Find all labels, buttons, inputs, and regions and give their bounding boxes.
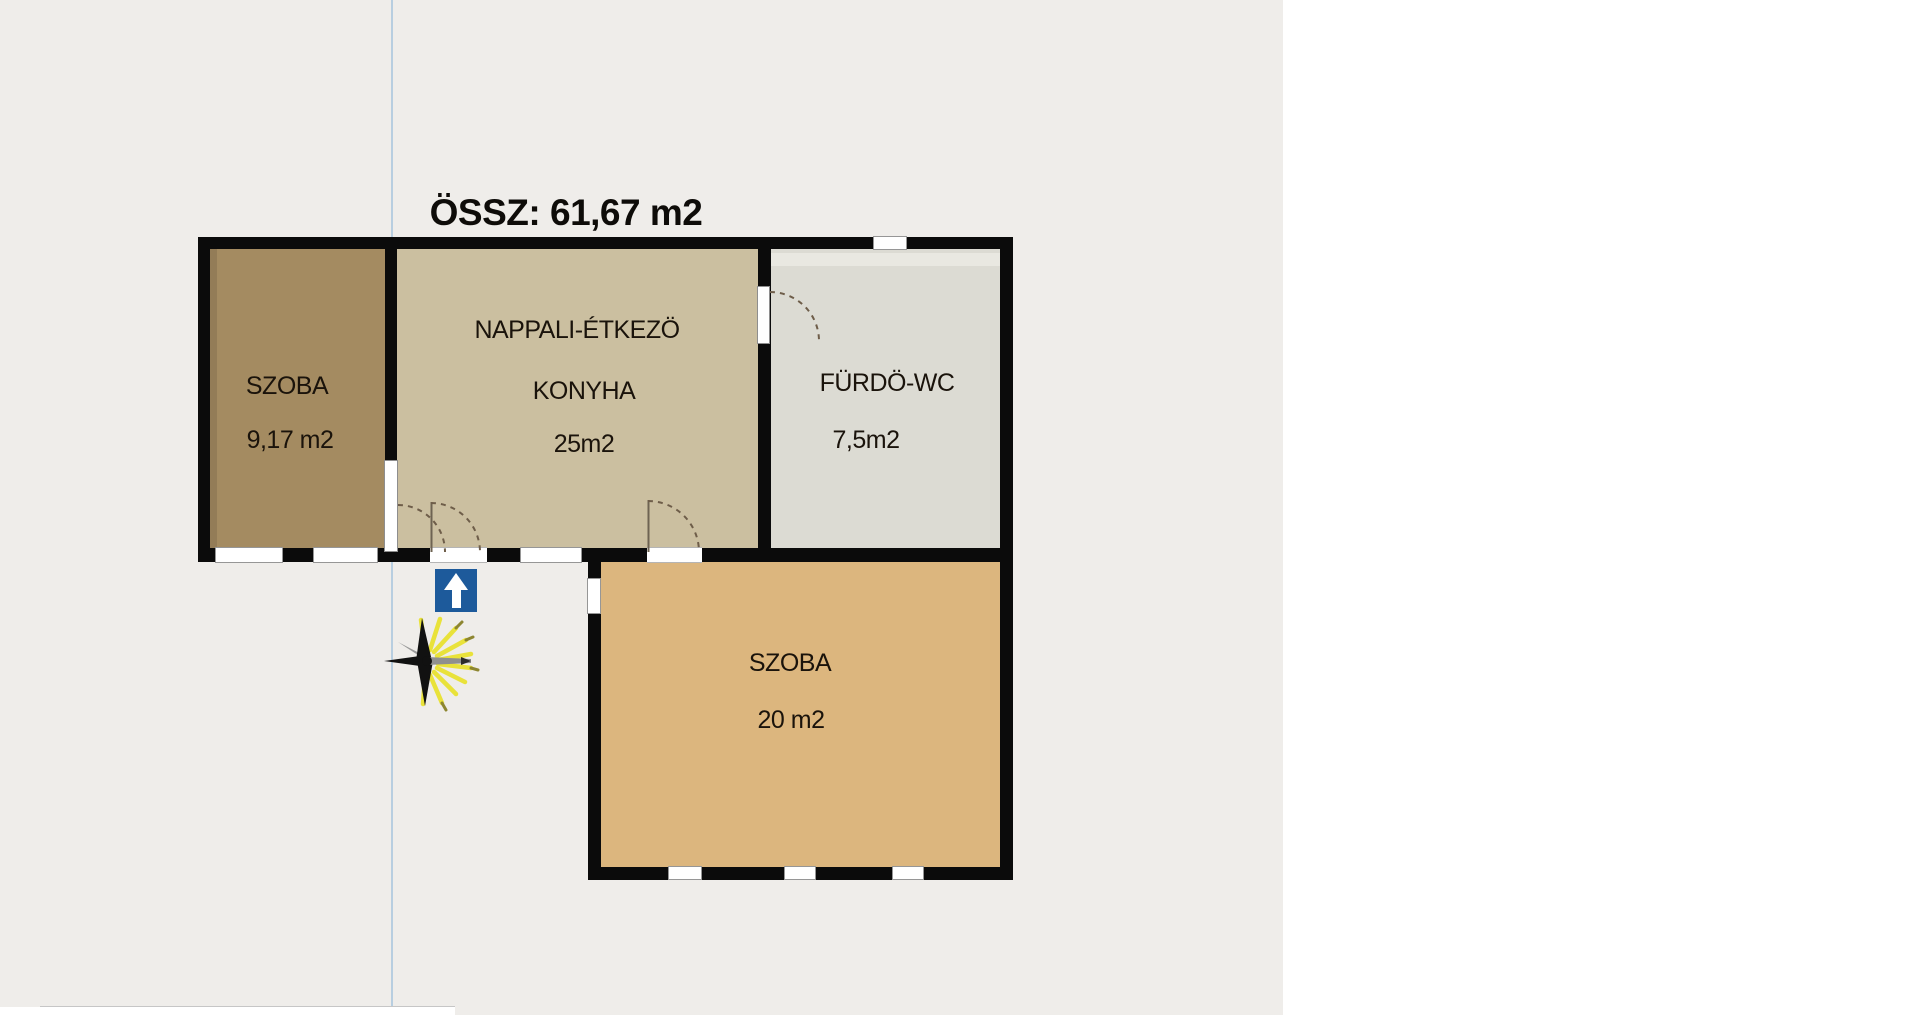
room-label-konyha: KONYHA [533,379,636,403]
door-opening-entrance [430,547,487,563]
furdo-wall-stripe [771,253,1000,266]
wall-left [198,237,210,562]
window [520,547,582,563]
entrance-up-arrow-icon [435,569,477,612]
window [873,236,907,250]
floorplan-canvas: ÖSSZ: 61,67 m2 [0,0,1920,1015]
door-jamb-furdo [757,286,770,344]
door-opening-szoba2 [647,547,702,563]
room-label-nappali: NAPPALI-ÉTKEZÖ [474,318,679,342]
light-starburst-icon [384,618,478,710]
room-area-szoba2: 20 m2 [758,708,825,732]
room-area-furdo: 7,5m2 [833,428,900,452]
door-jamb-szoba1 [384,460,398,552]
right-white-panel [1283,0,1920,1015]
bottom-edge-strip [0,1007,455,1015]
room-label-szoba1: SZOBA [246,374,328,398]
room-area-nappali: 25m2 [554,432,615,456]
room-label-furdo: FÜRDÖ-WC [820,371,955,395]
room-area-szoba1: 9,17 m2 [247,428,334,452]
room-furdo-wc [771,249,1000,548]
window-vertical [587,578,601,614]
total-area-title: ÖSSZ: 61,67 m2 [430,192,703,234]
window [784,866,816,880]
window [668,866,702,880]
window [215,547,283,563]
room-szoba1-shading [210,249,217,548]
room-label-szoba2: SZOBA [749,651,831,675]
window [892,866,924,880]
window [313,547,378,563]
